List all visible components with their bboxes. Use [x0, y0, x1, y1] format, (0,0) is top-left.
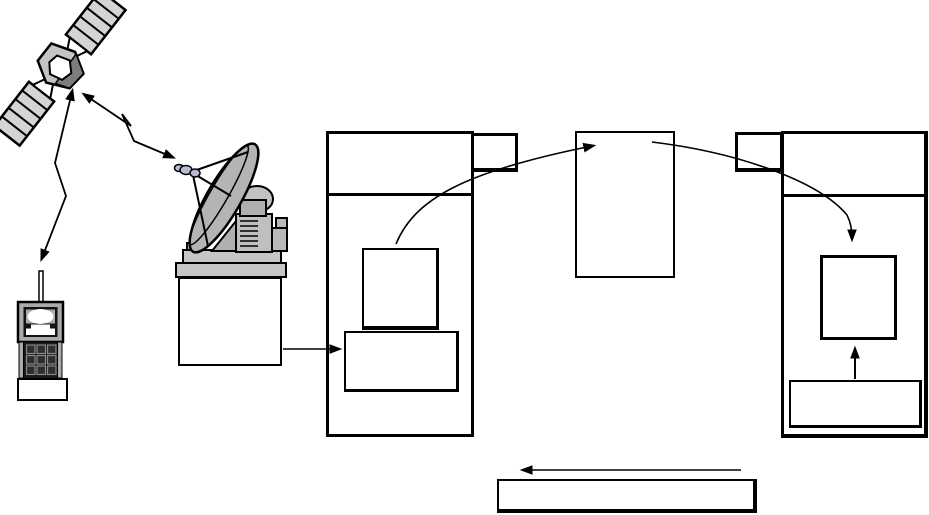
left-upper-module-box	[362, 248, 439, 330]
right-station-tab	[735, 132, 783, 172]
dish-base-box	[178, 277, 282, 366]
right-station-header-line	[781, 194, 928, 197]
diagram-canvas	[0, 0, 929, 515]
center-module-box	[575, 131, 675, 278]
bottom-return-box	[497, 479, 757, 513]
boxes-layer	[0, 0, 929, 515]
right-lower-module-box	[789, 380, 922, 428]
left-station-header-line	[326, 193, 474, 196]
left-station-tab	[471, 133, 518, 172]
right-inner-module-box	[820, 255, 897, 340]
handset-base-box	[17, 378, 68, 401]
left-lower-module-box	[344, 331, 459, 392]
